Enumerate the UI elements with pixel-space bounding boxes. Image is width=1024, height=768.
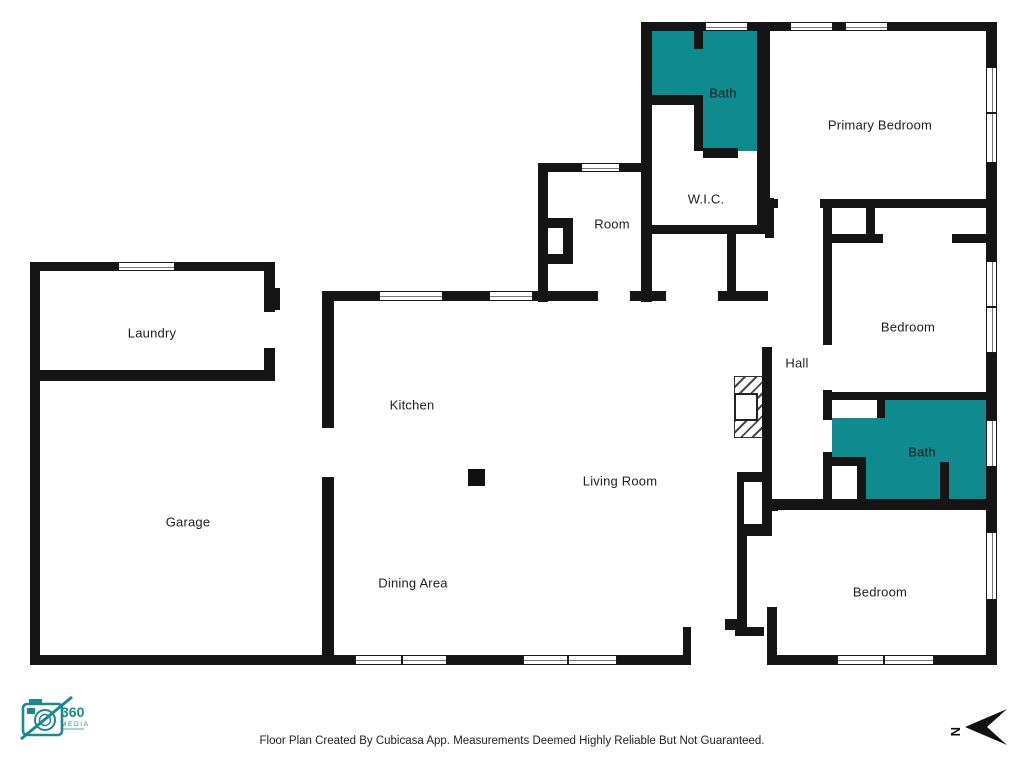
wall-segment [703, 148, 738, 158]
wall-segment [877, 400, 885, 418]
wall-segment [823, 234, 883, 243]
wall-segment [617, 655, 691, 665]
wall-segment [272, 288, 280, 310]
wall-segment [823, 392, 990, 400]
wall-segment [651, 95, 703, 105]
wall-segment [767, 499, 997, 510]
wall-segment [823, 199, 832, 345]
wall-segment [737, 482, 744, 524]
north-arrow-icon: N [943, 706, 1009, 750]
wall-segment [264, 348, 275, 381]
wall-segment [322, 291, 334, 428]
wall-segment [727, 234, 736, 301]
wall-segment [986, 22, 997, 67]
wall-segment [952, 234, 988, 243]
room-label-living-room: Living Room [583, 474, 657, 489]
company-logo-360-media: 360 MEDIA [20, 690, 90, 742]
wall-segment [986, 353, 997, 393]
window-glyph [986, 113, 997, 163]
wall-segment [986, 208, 997, 261]
room-label-garage: Garage [166, 515, 211, 530]
window-glyph [379, 291, 443, 301]
window-glyph [986, 420, 997, 467]
window-glyph [986, 67, 997, 113]
wall-segment [765, 198, 774, 238]
window-glyph [986, 532, 997, 600]
wall-segment [833, 22, 845, 31]
wall-segment [683, 627, 691, 665]
wall-segment [538, 163, 548, 302]
wall-segment [934, 655, 997, 665]
window-glyph [402, 655, 447, 665]
wall-segment [737, 524, 769, 536]
wall-segment [986, 393, 997, 420]
room-label-room: Room [594, 217, 629, 232]
support-pillar [468, 469, 485, 486]
logo-number: 360 [61, 704, 85, 720]
wall-segment [30, 370, 275, 381]
disclaimer-text: Floor Plan Created By Cubicasa App. Meas… [260, 735, 765, 747]
window-glyph [790, 22, 833, 31]
window-glyph [523, 655, 568, 665]
wall-segment [718, 291, 768, 301]
room-label-w-i-c-: W.I.C. [688, 192, 725, 207]
window-glyph [355, 655, 402, 665]
wall-segment [447, 655, 524, 665]
logo-word: MEDIA [61, 721, 90, 728]
wall-segment [940, 462, 949, 500]
wall-segment [642, 225, 770, 234]
room-inset [832, 400, 877, 418]
window-glyph [986, 307, 997, 353]
room-label-dining-area: Dining Area [378, 576, 447, 591]
wall-segment [986, 510, 997, 532]
fireplace-opening [734, 393, 758, 421]
wall-segment [694, 31, 703, 49]
window-glyph [845, 22, 888, 31]
wall-segment [443, 291, 489, 301]
room-label-bedroom: Bedroom [881, 320, 935, 335]
window-glyph [581, 163, 620, 172]
room-label-bedroom: Bedroom [853, 585, 907, 600]
wall-segment [767, 607, 777, 657]
wall-segment [641, 22, 705, 31]
wall-segment [641, 22, 652, 302]
wall-segment [767, 655, 837, 665]
floor-plan-canvas: BathPrimary BedroomW.I.C.RoomLaundryKitc… [0, 0, 1024, 768]
wall-segment [322, 291, 379, 301]
wall-segment [538, 163, 581, 172]
window-glyph [837, 655, 884, 665]
window-glyph [568, 655, 617, 665]
wall-segment [175, 262, 275, 271]
north-letter: N [948, 727, 963, 736]
wall-segment [547, 254, 573, 264]
room-label-hall: Hall [785, 356, 808, 371]
window-glyph [705, 22, 748, 31]
wall-segment [725, 619, 737, 630]
wall-segment [620, 163, 646, 172]
wall-segment [737, 472, 769, 482]
wall-segment [30, 262, 40, 665]
room-label-bath: Bath [709, 86, 737, 101]
wall-segment [735, 627, 764, 636]
wall-segment [322, 477, 334, 665]
wall-segment [30, 655, 355, 665]
window-glyph [118, 262, 175, 271]
room-inset [651, 104, 695, 151]
wall-segment [30, 262, 118, 271]
window-glyph [884, 655, 934, 665]
wall-segment [888, 22, 997, 31]
wall-segment [547, 218, 573, 228]
wall-segment [563, 228, 573, 254]
room-label-bath: Bath [908, 445, 936, 460]
wall-segment [737, 536, 747, 628]
window-glyph [986, 261, 997, 307]
wall-segment [986, 163, 997, 208]
window-glyph [489, 291, 533, 301]
room-label-primary-bedroom: Primary Bedroom [828, 118, 932, 133]
wall-segment [820, 199, 997, 208]
room-label-laundry: Laundry [128, 326, 176, 341]
room-label-kitchen: Kitchen [390, 398, 435, 413]
wall-segment [694, 105, 703, 151]
wall-segment [857, 457, 866, 500]
